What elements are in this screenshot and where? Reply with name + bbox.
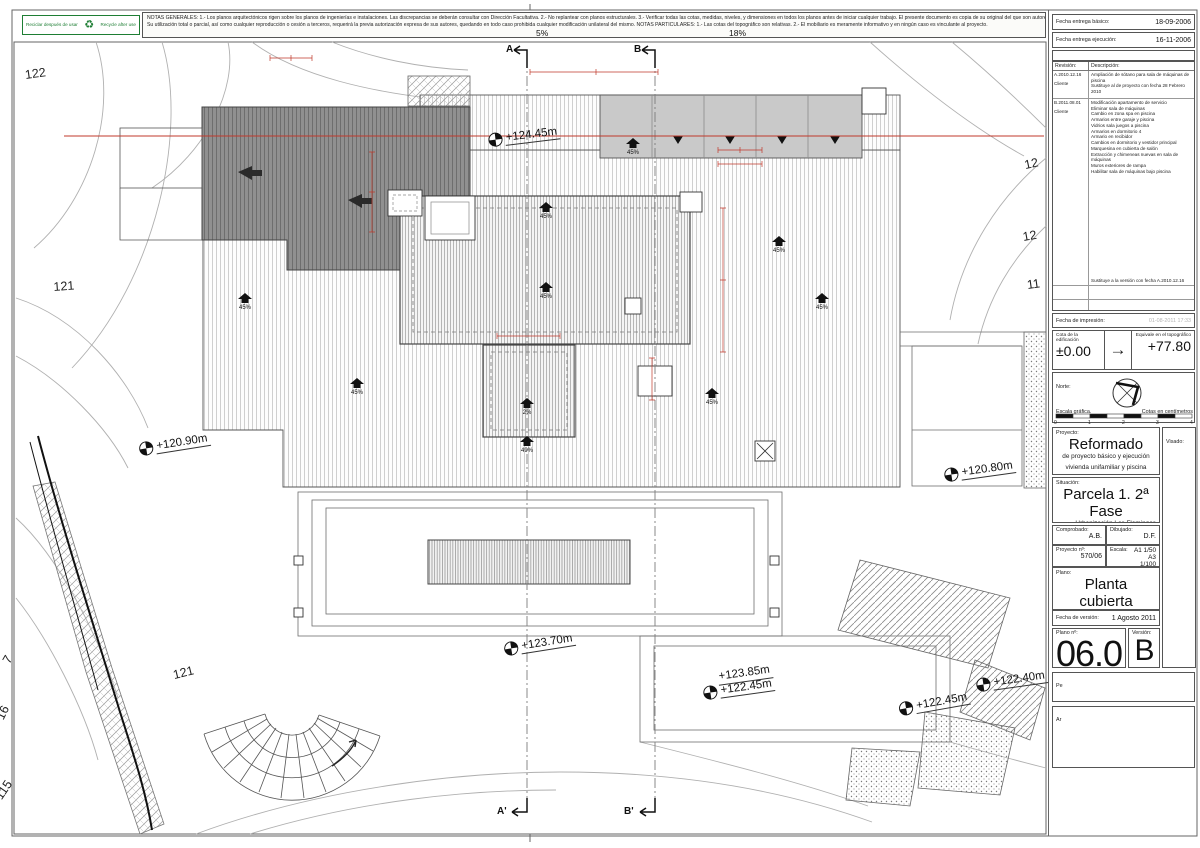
field-value: 01-08-2011 17:33 — [1149, 318, 1191, 324]
revision-table: Revisión: Descripción: A.2010.12.16 Clie… — [1052, 61, 1195, 311]
field-label: Escala: — [1110, 547, 1128, 565]
topographic-datum-cell: Equivale en el topográfico +77.80 — [1132, 331, 1194, 369]
revision-row-empty — [1053, 300, 1194, 311]
slope-arrow-icon — [772, 236, 786, 247]
contour-label: 122 — [24, 65, 47, 82]
print-date: Fecha de impresión: 01-08-2011 17:33 — [1052, 313, 1195, 328]
situation-title: Parcela 1. 2ª Fase — [1056, 486, 1156, 520]
pe-box: Pe — [1052, 672, 1195, 702]
recycle-label-en: Recycle after use — [101, 23, 137, 28]
building-datum-cell: Cota de la edificación ±0.00 — [1053, 331, 1105, 369]
level-reference-block: Cota de la edificación ±0.00 → Equivale … — [1052, 330, 1195, 370]
level-marker-icon — [487, 131, 504, 148]
slope-marker: 45% — [539, 202, 553, 220]
level-marker-icon — [138, 440, 155, 457]
rev-a-desc-cell: Ampliación de sótano para sala de máquin… — [1089, 71, 1194, 98]
slope-marker: 2% — [520, 398, 534, 416]
empty-cell — [1053, 286, 1089, 299]
field-label: Pe — [1056, 683, 1063, 689]
field-label: Visado: — [1166, 439, 1184, 445]
scale-tick: 4 — [1190, 420, 1193, 425]
level-marker-icon — [897, 700, 914, 717]
equals-arrow-icon: → — [1105, 331, 1132, 369]
field-value: D.F. — [1110, 533, 1156, 540]
slope-marker: 49% — [520, 436, 534, 454]
field-label: Cota de la edificación — [1056, 333, 1101, 343]
scale-bar: 0 1 2 3 4 — [1052, 413, 1195, 425]
slope-text: 45% — [540, 214, 552, 220]
rev-b-id-cell: B.2011.08.01 Cliente — [1053, 99, 1089, 285]
scale-value: A3 1/100 — [1131, 554, 1156, 567]
slope-marker: 45% — [772, 236, 786, 254]
empty-cell — [1053, 300, 1089, 311]
version-box: Versión: B — [1128, 628, 1160, 668]
slope-arrow-icon — [520, 398, 534, 409]
rev-id: A.2010.12.16 — [1054, 72, 1087, 77]
slope-text: 45% — [816, 305, 828, 311]
slope-arrow-icon — [238, 293, 252, 304]
recycle-label-es: Reciclar después de usar — [26, 23, 78, 28]
contour-label: 12 — [1022, 228, 1038, 244]
rev-note: Sustituye al de proyecto con fecha 28 Fe… — [1091, 83, 1192, 94]
checked-by-box: Comprobado: A.B. — [1052, 525, 1106, 545]
fan-stair — [204, 714, 380, 800]
notes-line-1: NOTAS GENERALES: 1.- Los planos arquitec… — [147, 15, 1041, 22]
level-marker-icon — [702, 684, 719, 701]
field-label: Norte: — [1056, 384, 1071, 390]
project-title: Reformado — [1056, 436, 1156, 453]
section-marker-a-prime: A' — [497, 806, 507, 817]
rev-note: Sustituye a la versión con fecha A.2010.… — [1091, 278, 1192, 284]
slope-marker: 45% — [350, 378, 364, 396]
field-label: Fecha de versión: — [1056, 615, 1099, 621]
slope-note: 5% — [536, 28, 548, 38]
scale-tick: 1 — [1088, 420, 1091, 425]
rev-a-id-cell: A.2010.12.16 Cliente — [1053, 71, 1089, 98]
slope-arrow-icon — [350, 378, 364, 389]
field-value: 1 Agosto 2011 — [1112, 615, 1156, 622]
sheet-number: 06.0 — [1056, 636, 1122, 668]
section-marker-a: A — [506, 44, 513, 55]
sheet-title: Planta cubierta — [1056, 576, 1156, 610]
ar-box: Ar — [1052, 706, 1195, 768]
level-marker-icon — [975, 676, 992, 693]
level-marker-icon — [503, 640, 520, 657]
sheet-title-box: Plano: Planta cubierta Distribución, cot… — [1052, 567, 1160, 610]
contour-label: 12 — [1023, 155, 1040, 172]
slope-arrow-icon — [539, 282, 553, 293]
north-compass-icon — [1105, 375, 1149, 411]
drawn-by-box: Dibujado: D.F. — [1106, 525, 1160, 545]
slope-text: 45% — [540, 294, 552, 300]
slope-text: 45% — [239, 305, 251, 311]
situation-box: Situación: Parcela 1. 2ª Fase Urbanizaci… — [1052, 477, 1160, 523]
field-value: 18-09-2006 — [1155, 19, 1191, 26]
roof-lower-box — [483, 345, 575, 437]
slope-arrow-icon — [626, 138, 640, 149]
rev-desc: Ampliación de sótano para sala de máquin… — [1091, 72, 1192, 83]
rev-by: Cliente — [1054, 81, 1087, 86]
section-marker-b-prime: B' — [624, 806, 634, 817]
slope-text: 45% — [627, 150, 639, 156]
modifications-header: Modificaciones: — [1052, 50, 1195, 61]
slope-marker: 45% — [626, 138, 640, 156]
version-letter: B — [1132, 636, 1156, 666]
slope-marker: 45% — [705, 388, 719, 406]
rev-b-desc-cell: Modificación apartamento de servicio Eli… — [1089, 99, 1194, 285]
revision-row-b: B.2011.08.01 Cliente Modificación aparta… — [1053, 99, 1194, 286]
slope-text: 45% — [351, 390, 363, 396]
slope-arrow-icon — [520, 436, 534, 447]
project-subtitle: vivienda unifamiliar y piscina — [1056, 464, 1156, 471]
field-label: Fecha de impresión: — [1056, 318, 1105, 324]
empty-cell — [1089, 300, 1194, 311]
slope-text: 2% — [523, 410, 532, 416]
revision-row-empty — [1053, 286, 1194, 300]
slope-arrow-icon — [815, 293, 829, 304]
rock-wall — [30, 436, 164, 834]
site-plan-drawing — [0, 0, 1200, 848]
delivery-date-execution: Fecha entrega ejecución: 16-11-2006 — [1052, 32, 1195, 48]
datum-value: ±0.00 — [1056, 343, 1101, 359]
rev-desc: Modificación apartamento de servicio Eli… — [1091, 100, 1192, 175]
contour-label: 11 — [1026, 276, 1041, 292]
scale-value: A1 1/50 — [1131, 547, 1156, 554]
field-label: Ar — [1056, 717, 1061, 723]
field-value: A.B. — [1056, 533, 1102, 540]
slope-text: 45% — [706, 400, 718, 406]
situation-line: Urbanización Los Flamingos — [1056, 520, 1156, 523]
sheet-number-box: Plano nº: 06.0 — [1052, 628, 1126, 668]
slope-note: 18% — [729, 28, 746, 38]
field-label: Fecha entrega básico: — [1056, 19, 1109, 25]
col-description: Descripción: — [1089, 62, 1122, 70]
version-date-box: Fecha de versión: 1 Agosto 2011 — [1052, 610, 1160, 626]
slope-text: 45% — [773, 248, 785, 254]
drawing-sheet: Reciclar después de usar ♻ Recycle after… — [0, 0, 1200, 848]
recycle-banner: Reciclar después de usar ♻ Recycle after… — [22, 15, 140, 35]
slope-arrow-icon — [705, 388, 719, 399]
visado-box: Visado: — [1162, 427, 1196, 668]
notes-line-2: Su utilización total o parcial, así como… — [147, 22, 1041, 29]
slope-arrow-icon — [539, 202, 553, 213]
rev-by: Cliente — [1054, 109, 1087, 114]
revision-table-header: Revisión: Descripción: — [1053, 62, 1194, 71]
project-box: Proyecto: Reformado de proyecto básico y… — [1052, 427, 1160, 475]
field-label: Fecha entrega ejecución: — [1056, 37, 1117, 43]
slope-marker: 45% — [815, 293, 829, 311]
scale-tick: 3 — [1156, 420, 1159, 425]
revision-row-a: A.2010.12.16 Cliente Ampliación de sótan… — [1053, 71, 1194, 99]
delivery-date-basic: Fecha entrega básico: 18-09-2006 — [1052, 14, 1195, 30]
field-value: 16-11-2006 — [1156, 37, 1191, 44]
datum-value: +77.80 — [1135, 338, 1191, 354]
slope-marker: 45% — [238, 293, 252, 311]
col-revision: Revisión: — [1053, 62, 1089, 70]
project-number-box: Proyecto nº: 570/06 — [1052, 545, 1106, 567]
field-value: 570/06 — [1056, 553, 1102, 560]
rev-id: B.2011.08.01 — [1054, 100, 1087, 105]
scale-tick: 0 — [1054, 420, 1057, 425]
section-marker-b: B — [634, 44, 641, 55]
project-subtitle: de proyecto básico y ejecución — [1056, 453, 1156, 460]
level-marker-icon — [943, 466, 960, 483]
contour-label: 121 — [53, 279, 75, 294]
scale-box: Escala: A1 1/50 A3 1/100 — [1106, 545, 1160, 567]
recycle-icon: ♻ — [84, 20, 94, 31]
slope-text: 49% — [521, 448, 533, 454]
slope-marker: 45% — [539, 282, 553, 300]
empty-cell — [1089, 286, 1194, 299]
scale-tick: 2 — [1122, 420, 1125, 425]
general-notes: NOTAS GENERALES: 1.- Los planos arquitec… — [142, 12, 1046, 38]
pergola — [428, 540, 630, 584]
